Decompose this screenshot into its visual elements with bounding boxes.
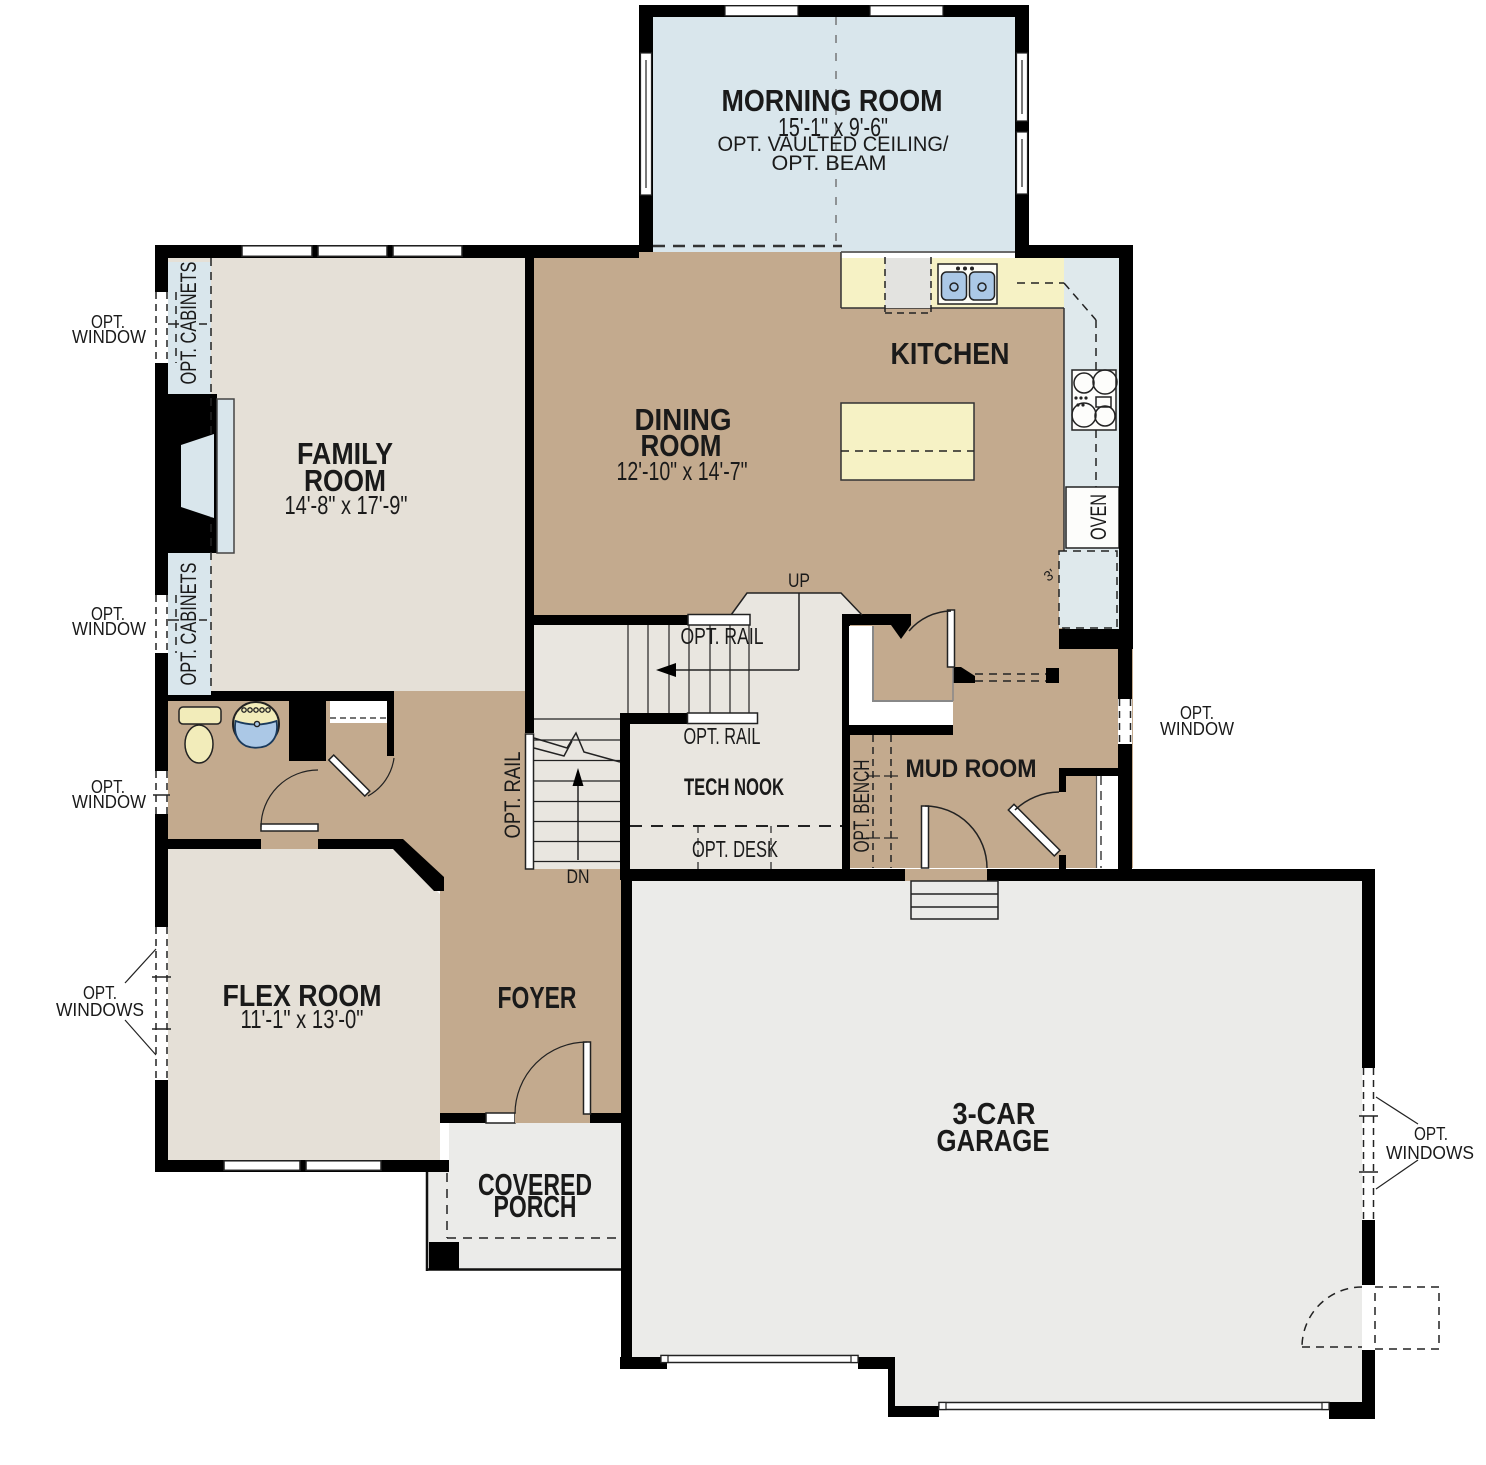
svg-text:OPT. BENCH: OPT. BENCH — [849, 760, 874, 853]
svg-text:OPT. CABINETS: OPT. CABINETS — [176, 262, 201, 385]
svg-text:OVEN: OVEN — [1086, 494, 1111, 540]
svg-text:12'-10" x 14'-7": 12'-10" x 14'-7" — [617, 456, 748, 486]
svg-text:OPT. RAIL: OPT. RAIL — [681, 623, 764, 649]
svg-text:DN: DN — [567, 867, 590, 888]
svg-text:KITCHEN: KITCHEN — [891, 336, 1010, 371]
svg-text:TECH NOOK: TECH NOOK — [684, 774, 784, 801]
svg-text:WINDOW: WINDOW — [72, 792, 146, 812]
svg-text:OPT. DESK: OPT. DESK — [692, 836, 778, 862]
svg-text:OPT. BEAM: OPT. BEAM — [772, 152, 887, 175]
svg-text:WINDOW: WINDOW — [72, 327, 146, 347]
svg-text:OPT. RAIL: OPT. RAIL — [500, 752, 525, 839]
svg-text:UP: UP — [788, 571, 810, 592]
svg-text:OPT. RAIL: OPT. RAIL — [684, 723, 761, 749]
svg-text:14'-8" x 17'-9": 14'-8" x 17'-9" — [285, 490, 408, 520]
svg-text:11'-1" x 13'-0": 11'-1" x 13'-0" — [241, 1004, 364, 1034]
svg-text:FOYER: FOYER — [498, 980, 577, 1015]
svg-text:OPT. CABINETS: OPT. CABINETS — [176, 563, 201, 686]
svg-text:WINDOWS: WINDOWS — [1386, 1143, 1474, 1163]
svg-text:OPT.: OPT. — [1414, 1124, 1448, 1144]
svg-text:PORCH: PORCH — [494, 1189, 577, 1224]
svg-text:WINDOW: WINDOW — [1160, 719, 1234, 739]
svg-text:WINDOW: WINDOW — [72, 619, 146, 639]
svg-text:WINDOWS: WINDOWS — [56, 1000, 144, 1020]
svg-text:GARAGE: GARAGE — [937, 1123, 1050, 1158]
svg-text:MUD ROOM: MUD ROOM — [906, 755, 1037, 783]
